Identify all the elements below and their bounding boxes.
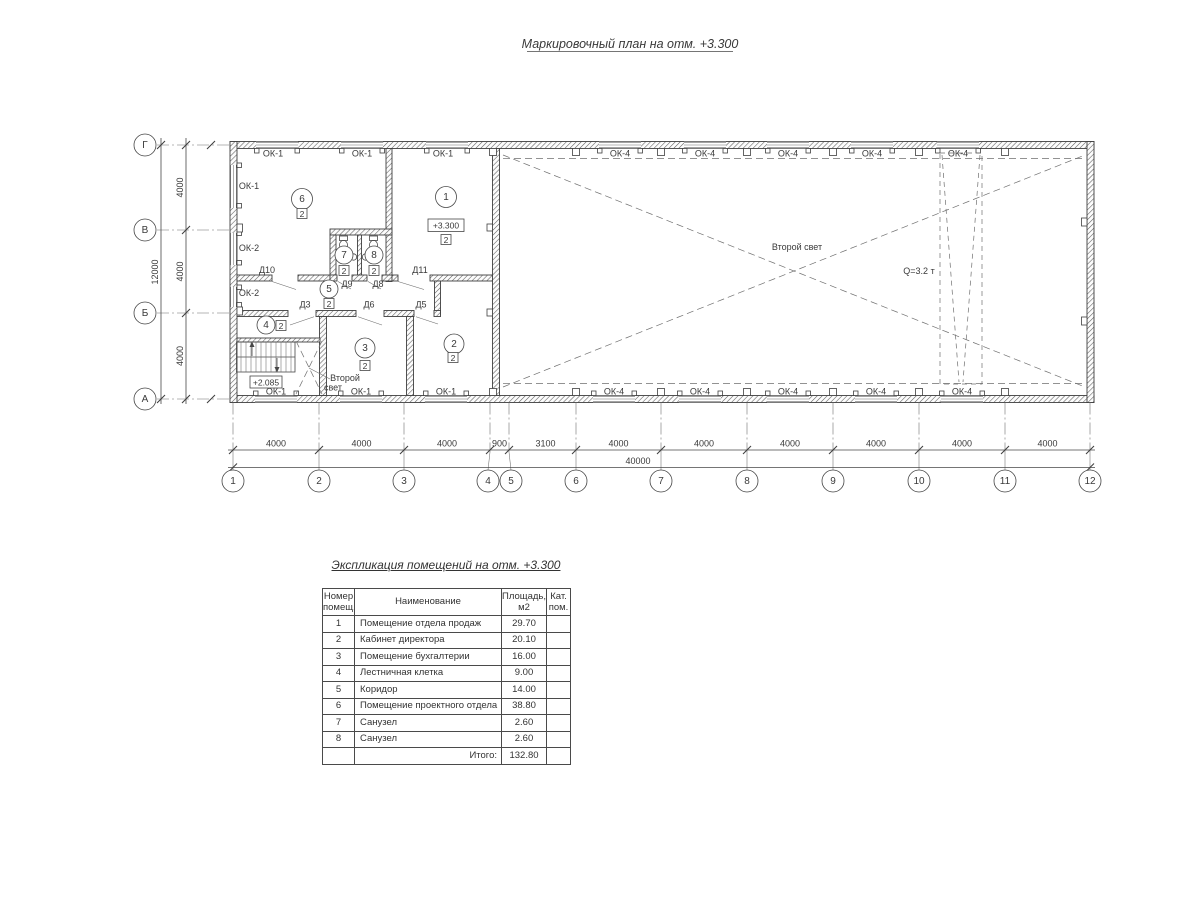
table-row: 6Помещение проектного отдела38.80 [323, 698, 571, 715]
crane-symbol [940, 153, 982, 384]
second-light-label-line1: Второй [330, 373, 360, 383]
floor-plan-svg: Маркировочный план на отм. +3.300 [0, 0, 1200, 900]
door-label: Д8 [372, 279, 383, 289]
room-number: 4 [263, 320, 269, 331]
second-light-label: Второй свет [772, 242, 822, 252]
door-label: Д11 [412, 265, 427, 275]
svg-text:11: 11 [1000, 476, 1011, 487]
svg-text:12: 12 [1084, 476, 1096, 487]
svg-text:900: 900 [492, 439, 507, 449]
axis-bubbles-bottom: 1 2 3 4 5 6 7 8 9 10 11 12 [222, 470, 1101, 492]
table-row: 1Помещение отдела продаж29.70 [323, 616, 571, 633]
zone-mark: 2 [279, 321, 284, 331]
window-label: ОК-2 [239, 288, 259, 298]
window-label: ОК-4 [778, 387, 798, 397]
room-number: 6 [299, 194, 305, 205]
elevation-label: +2.085 [253, 378, 280, 388]
table-total-row: Итого: 132.80 [323, 748, 571, 765]
zone-mark: 2 [451, 353, 456, 363]
drawing-sheet: Маркировочный план на отм. +3.300 [0, 0, 1200, 900]
room-number: 3 [362, 343, 368, 354]
svg-text:4000: 4000 [866, 439, 886, 449]
window-label: ОК-1 [433, 149, 453, 159]
col-header-category: Кат.пом. [547, 589, 571, 616]
svg-text:4000: 4000 [780, 439, 800, 449]
window-label: ОК-1 [351, 387, 371, 397]
svg-text:4000: 4000 [694, 439, 714, 449]
svg-text:12000: 12000 [150, 259, 160, 284]
total-value: 132.80 [502, 748, 547, 765]
zone-mark: 2 [372, 266, 377, 276]
table-header-row: Номерпомещ. Наименование Площадь,м2 Кат.… [323, 589, 571, 616]
col-header-number: Номерпомещ. [323, 589, 355, 616]
door-label: Д5 [415, 300, 426, 310]
zone-mark: 2 [300, 209, 305, 219]
svg-text:1: 1 [230, 476, 236, 487]
svg-text:А: А [142, 394, 149, 405]
svg-text:Г: Г [142, 140, 148, 151]
svg-text:5: 5 [508, 476, 514, 487]
col-header-name: Наименование [355, 589, 502, 616]
toilet-icon [340, 236, 348, 241]
door-label: Д9 [341, 279, 352, 289]
svg-text:4000: 4000 [351, 439, 371, 449]
svg-text:4000: 4000 [437, 439, 457, 449]
axes-bottom [233, 403, 1090, 471]
window-label: ОК-4 [690, 387, 710, 397]
svg-text:4000: 4000 [608, 439, 628, 449]
window-label: ОК-4 [610, 149, 630, 159]
room-number: 8 [371, 250, 377, 261]
svg-text:2: 2 [316, 476, 322, 487]
zone-mark: 2 [342, 266, 347, 276]
toilet-icon [370, 236, 378, 241]
svg-text:7: 7 [658, 476, 664, 487]
svg-text:3: 3 [401, 476, 407, 487]
svg-text:4000: 4000 [175, 177, 185, 197]
window-label: ОК-4 [604, 387, 624, 397]
table-row: 5Коридор14.00 [323, 682, 571, 699]
second-light-label-line2: свет [324, 383, 342, 393]
svg-text:3100: 3100 [535, 439, 555, 449]
table-row: 3Помещение бухгалтерии16.00 [323, 649, 571, 666]
door-label: Д3 [299, 300, 310, 310]
col-header-area: Площадь,м2 [502, 589, 547, 616]
room-number: 7 [341, 250, 347, 261]
window-label: ОК-4 [695, 149, 715, 159]
svg-text:4000: 4000 [175, 261, 185, 281]
table-row: 8Санузел2.60 [323, 731, 571, 748]
total-label: Итого: [355, 748, 502, 765]
svg-text:40000: 40000 [625, 456, 650, 466]
svg-text:Б: Б [142, 308, 149, 319]
zone-mark: 2 [363, 361, 368, 371]
door-label: Д10 [259, 265, 275, 275]
window-label: ОК-4 [866, 387, 886, 397]
svg-text:4000: 4000 [175, 346, 185, 366]
window-label: ОК-1 [263, 149, 283, 159]
svg-text:В: В [142, 225, 149, 236]
schedule-title: Экспликация помещений на отм. +3.300 [322, 558, 570, 572]
window-label: ОК-4 [952, 387, 972, 397]
window-label: ОК-1 [239, 181, 259, 191]
hall-features [237, 149, 1087, 396]
svg-text:4: 4 [485, 476, 491, 487]
table-row: 7Санузел2.60 [323, 715, 571, 732]
svg-text:9: 9 [830, 476, 836, 487]
crane-capacity-label: Q=3.2 т [903, 266, 934, 276]
svg-text:6: 6 [573, 476, 579, 487]
dimension-line-bottom: 4000 4000 4000 900 3100 4000 4000 4000 4… [228, 439, 1095, 472]
svg-text:10: 10 [913, 476, 925, 487]
window-label: ОК-4 [862, 149, 882, 159]
zone-mark: 2 [444, 235, 449, 245]
window-label: ОК-1 [352, 149, 372, 159]
window-label: ОК-2 [239, 243, 259, 253]
svg-text:8: 8 [744, 476, 750, 487]
room-schedule: Экспликация помещений на отм. +3.300 Ном… [322, 558, 570, 765]
room-schedule-table: Номерпомещ. Наименование Площадь,м2 Кат.… [322, 588, 571, 765]
table-row: 4Лестничная клетка9.00 [323, 665, 571, 682]
svg-text:4000: 4000 [952, 439, 972, 449]
window-label: ОК-4 [948, 149, 968, 159]
axes-left: 4000 4000 4000 12000 Г В Б А [134, 134, 230, 410]
svg-text:4000: 4000 [266, 439, 286, 449]
room-number: 5 [326, 284, 332, 295]
elevation-marks: +3.300 +2.085 [250, 219, 464, 388]
plan-title: Маркировочный план на отм. +3.300 [522, 37, 739, 51]
door-label: Д6 [363, 300, 374, 310]
window-label: ОК-1 [436, 387, 456, 397]
room-number: 1 [443, 192, 449, 203]
window-label: ОК-4 [778, 149, 798, 159]
room-number: 2 [451, 339, 457, 350]
svg-text:4000: 4000 [1037, 439, 1057, 449]
zone-mark: 2 [327, 299, 332, 309]
elevation-label: +3.300 [433, 221, 460, 231]
table-row: 2Кабинет директора20.10 [323, 632, 571, 649]
